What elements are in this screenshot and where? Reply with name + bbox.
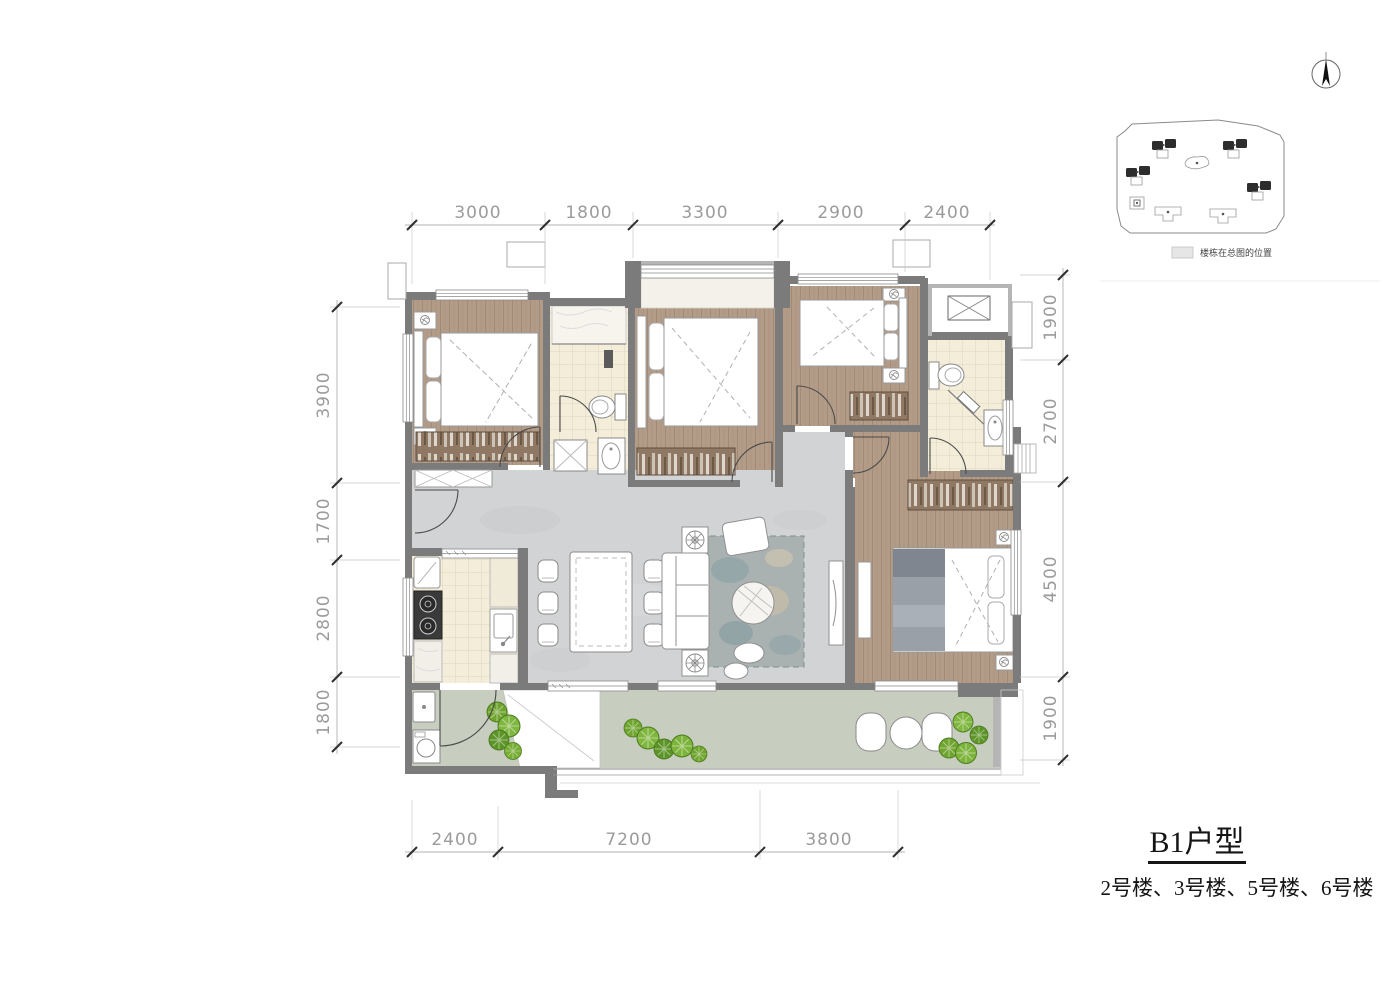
kitchen-counter xyxy=(414,641,442,682)
shower xyxy=(552,306,626,344)
sliding-door xyxy=(658,681,716,691)
dim-label: 1900 xyxy=(1041,293,1061,340)
coffee-table xyxy=(732,582,774,624)
dresser xyxy=(858,562,871,638)
unit-title: B1户型 xyxy=(1149,826,1244,859)
bed xyxy=(893,548,1014,652)
wardrobe xyxy=(416,432,540,461)
dining-table-icon xyxy=(570,552,632,652)
window xyxy=(403,334,413,422)
dim-label: 2400 xyxy=(923,203,970,223)
foyer-floor xyxy=(783,432,845,487)
dimension-left: 3900 1700 2800 1800 xyxy=(314,300,400,754)
floorplan-drawing: 3000 1800 3300 2900 2400 3900 1700 2800 … xyxy=(0,0,1400,990)
stove-icon xyxy=(414,591,442,639)
legend-swatch xyxy=(1172,247,1193,258)
north-arrow-icon xyxy=(1312,52,1340,88)
dim-label: 4500 xyxy=(1041,555,1061,602)
wardrobe xyxy=(850,392,908,420)
shoe-cabinet xyxy=(415,470,492,487)
dim-label: 2900 xyxy=(817,203,864,223)
dim-label: 1900 xyxy=(1041,694,1061,741)
sofa-icon xyxy=(662,553,709,649)
bay-window-glazing xyxy=(641,265,774,278)
dim-label: 2800 xyxy=(314,594,334,641)
ottoman xyxy=(734,643,764,663)
dim-label: 1700 xyxy=(314,497,334,544)
dining-set xyxy=(538,552,664,652)
dim-label: 1800 xyxy=(314,688,334,735)
dim-label: 7200 xyxy=(605,830,652,850)
side-table xyxy=(682,650,708,676)
kitchen-counter xyxy=(490,654,518,683)
sliding-door xyxy=(875,681,958,691)
window xyxy=(436,290,528,300)
legend-label: 楼栋在总图的位置 xyxy=(1200,247,1272,258)
dim-label: 2700 xyxy=(1041,397,1061,444)
window xyxy=(798,274,898,284)
unit-subtitle: 2号楼、3号楼、5号楼、6号楼 xyxy=(1101,876,1374,900)
dim-label: 3800 xyxy=(805,830,852,850)
sink xyxy=(598,438,625,474)
site-boundary xyxy=(1117,120,1284,233)
dim-label: 3900 xyxy=(314,371,334,418)
title-underline xyxy=(1148,861,1246,864)
dim-label: 2400 xyxy=(431,830,478,850)
window xyxy=(403,578,413,656)
bed xyxy=(800,298,907,368)
kitchen-cabinet xyxy=(490,557,518,607)
dim-label: 3300 xyxy=(681,203,728,223)
site-key-map: 楼栋在总图的位置 xyxy=(1100,120,1380,281)
small-building xyxy=(1130,197,1144,209)
kitchen-sink xyxy=(490,609,517,652)
ac-unit-icon xyxy=(948,296,990,320)
washer-icon xyxy=(413,730,440,763)
title-block: B1户型 2号楼、3号楼、5号楼、6号楼 xyxy=(1101,826,1374,900)
site-legend: 楼栋在总图的位置 xyxy=(1172,247,1272,258)
window xyxy=(1011,530,1021,615)
floorplan-page: 3000 1800 3300 2900 2400 3900 1700 2800 … xyxy=(0,0,1400,990)
dim-label: 1800 xyxy=(565,203,612,223)
armchair xyxy=(722,516,770,556)
window xyxy=(1003,400,1013,455)
outdoor-furniture xyxy=(856,713,952,751)
kitchen-sliding-door xyxy=(442,549,518,558)
toilet xyxy=(589,394,626,420)
shower-head xyxy=(604,350,613,368)
sliding-door xyxy=(548,681,628,691)
wardrobe xyxy=(908,480,1013,510)
dim-label: 3000 xyxy=(454,203,501,223)
dimension-bottom: 2400 7200 3800 xyxy=(405,790,905,860)
laundry-sink xyxy=(413,692,435,722)
side-table xyxy=(682,527,708,553)
outdoor-chair xyxy=(856,713,886,751)
bay-window-sill xyxy=(641,278,774,308)
entry-stairs xyxy=(1014,444,1036,473)
wardrobe xyxy=(637,448,735,475)
ottoman xyxy=(724,663,748,679)
washing-machine xyxy=(554,440,587,471)
outdoor-table xyxy=(890,717,922,749)
tv-console xyxy=(829,561,843,645)
